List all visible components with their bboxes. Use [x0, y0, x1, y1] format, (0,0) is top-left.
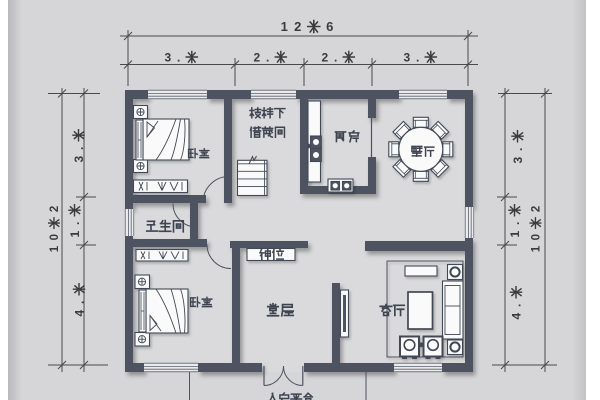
svg-text:1: 1 — [68, 230, 82, 237]
svg-text:2: 2 — [294, 19, 301, 34]
svg-text:.: . — [266, 50, 269, 64]
svg-text:1: 1 — [49, 245, 61, 252]
svg-text:3: 3 — [72, 155, 86, 162]
svg-text:6: 6 — [326, 19, 333, 34]
svg-text:.: . — [68, 222, 82, 225]
svg-text:1: 1 — [531, 245, 543, 252]
svg-text:.: . — [177, 50, 180, 64]
svg-text:1: 1 — [281, 19, 288, 34]
svg-text:.: . — [334, 50, 337, 64]
svg-text:.: . — [72, 147, 86, 150]
svg-text:.: . — [509, 304, 523, 307]
svg-text:.: . — [72, 301, 86, 304]
svg-text:4: 4 — [72, 309, 86, 316]
svg-text:4: 4 — [509, 312, 523, 319]
svg-text:.: . — [416, 50, 419, 64]
svg-text:0: 0 — [49, 234, 61, 240]
svg-text:.: . — [508, 222, 522, 225]
svg-text:3: 3 — [404, 50, 411, 64]
svg-text:.: . — [511, 148, 525, 151]
svg-text:0: 0 — [531, 234, 543, 240]
svg-text:2: 2 — [531, 206, 543, 212]
svg-text:3: 3 — [511, 156, 525, 163]
svg-text:2: 2 — [49, 206, 61, 212]
svg-text:1: 1 — [508, 230, 522, 237]
svg-text:3: 3 — [165, 50, 172, 64]
svg-text:2: 2 — [322, 50, 329, 64]
svg-text:2: 2 — [254, 50, 261, 64]
